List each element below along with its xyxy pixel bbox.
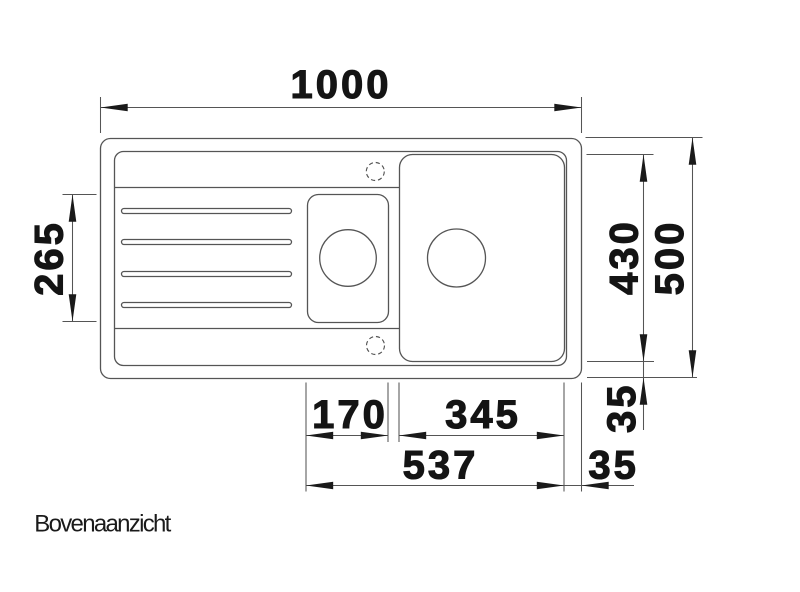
svg-text:265: 265 xyxy=(28,220,72,296)
svg-text:1000: 1000 xyxy=(291,63,392,107)
svg-text:35: 35 xyxy=(588,443,639,487)
svg-text:35: 35 xyxy=(600,382,644,433)
svg-text:Bovenaanzicht: Bovenaanzicht xyxy=(34,510,171,537)
svg-text:345: 345 xyxy=(445,393,521,437)
svg-text:170: 170 xyxy=(312,393,388,437)
svg-text:537: 537 xyxy=(403,444,479,488)
svg-text:430: 430 xyxy=(603,219,647,295)
svg-text:500: 500 xyxy=(648,220,692,296)
